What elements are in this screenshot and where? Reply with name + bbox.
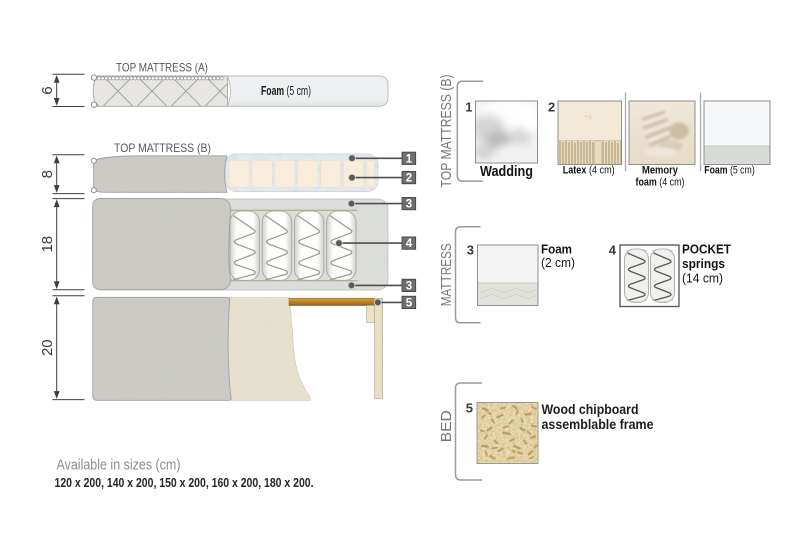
svg-text:POCKET: POCKET bbox=[682, 243, 731, 257]
svg-text:TOP MATTRESS (B): TOP MATTRESS (B) bbox=[114, 141, 211, 155]
svg-text:(2 cm): (2 cm) bbox=[541, 256, 575, 270]
svg-text:(14 cm): (14 cm) bbox=[682, 272, 723, 286]
svg-text:Available in sizes (cm): Available in sizes (cm) bbox=[57, 458, 181, 474]
svg-text:MATTRESS: MATTRESS bbox=[439, 243, 455, 306]
svg-text:8: 8 bbox=[39, 170, 56, 178]
svg-text:3: 3 bbox=[406, 199, 412, 211]
svg-text:springs: springs bbox=[682, 257, 725, 271]
svg-text:120 x 200, 140 x 200, 150 x 20: 120 x 200, 140 x 200, 150 x 200, 160 x 2… bbox=[55, 475, 314, 490]
svg-text:Wood chipboard: Wood chipboard bbox=[542, 402, 639, 417]
svg-text:4: 4 bbox=[406, 238, 413, 250]
svg-text:18: 18 bbox=[39, 236, 56, 253]
svg-text:TOP MATTRESS (A): TOP MATTRESS (A) bbox=[116, 61, 208, 75]
svg-text:foam (4 cm): foam (4 cm) bbox=[636, 177, 685, 189]
svg-text:Wadding: Wadding bbox=[480, 163, 533, 180]
svg-text:5: 5 bbox=[466, 400, 473, 415]
svg-text:Latex (4 cm): Latex (4 cm) bbox=[563, 165, 615, 177]
svg-text:Foam (5 cm): Foam (5 cm) bbox=[704, 165, 755, 177]
svg-text:3: 3 bbox=[467, 243, 474, 258]
svg-text:2: 2 bbox=[406, 173, 412, 185]
svg-text:4: 4 bbox=[609, 243, 617, 258]
svg-text:Memory: Memory bbox=[642, 165, 679, 177]
svg-text:Foam: Foam bbox=[541, 243, 572, 257]
svg-text:2: 2 bbox=[548, 99, 555, 114]
svg-text:5: 5 bbox=[406, 298, 413, 310]
svg-text:1: 1 bbox=[465, 99, 472, 114]
svg-text:BED: BED bbox=[439, 410, 455, 442]
svg-text:1: 1 bbox=[406, 153, 413, 165]
svg-text:20: 20 bbox=[39, 339, 56, 356]
svg-text:Foam (5 cm): Foam (5 cm) bbox=[261, 84, 311, 98]
svg-text:3: 3 bbox=[406, 281, 412, 293]
svg-text:TOP MATTRESS (B): TOP MATTRESS (B) bbox=[439, 75, 455, 188]
svg-text:assemblable frame: assemblable frame bbox=[542, 417, 654, 432]
svg-text:6: 6 bbox=[39, 86, 56, 94]
